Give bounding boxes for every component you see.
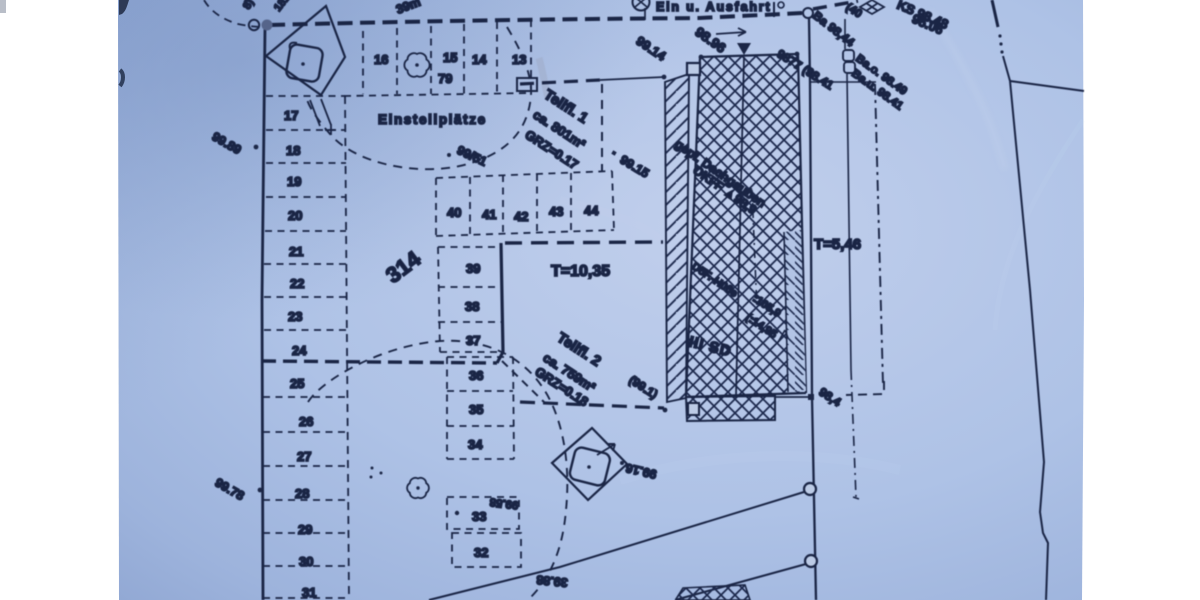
svg-text:44: 44 <box>584 203 599 218</box>
svg-text:43: 43 <box>549 204 563 219</box>
svg-text:34: 34 <box>468 437 483 452</box>
svg-text:79: 79 <box>438 71 452 86</box>
svg-text:41: 41 <box>482 207 496 222</box>
svg-text:30: 30 <box>299 554 313 569</box>
svg-text:19: 19 <box>287 174 301 189</box>
svg-text:Ein u. Ausfahrt: Ein u. Ausfahrt <box>656 0 771 14</box>
svg-text:18: 18 <box>286 143 300 158</box>
svg-text:32: 32 <box>474 545 488 560</box>
svg-text:31: 31 <box>302 585 316 600</box>
svg-text:T=5,46: T=5,46 <box>814 236 861 253</box>
svg-text:T=10,35: T=10,35 <box>551 263 610 280</box>
svg-text:20: 20 <box>288 208 302 223</box>
svg-text:26: 26 <box>299 414 313 429</box>
svg-text:Einstellplätze: Einstellplätze <box>378 112 487 127</box>
svg-text:14: 14 <box>472 52 487 67</box>
svg-text:39: 39 <box>466 261 480 276</box>
svg-text:27: 27 <box>297 449 311 464</box>
svg-text:38: 38 <box>465 299 479 314</box>
svg-text:36: 36 <box>469 368 483 383</box>
svg-text:24: 24 <box>292 343 307 358</box>
svg-text:16: 16 <box>374 52 388 67</box>
svg-text:29: 29 <box>298 522 312 537</box>
svg-text:42: 42 <box>514 209 528 224</box>
svg-text:15: 15 <box>443 50 457 65</box>
svg-text:17: 17 <box>284 108 298 123</box>
svg-text:25: 25 <box>290 376 304 391</box>
svg-text:35: 35 <box>469 402 483 417</box>
svg-text:33: 33 <box>472 509 486 524</box>
svg-text:40: 40 <box>447 205 461 220</box>
svg-text:28: 28 <box>295 486 309 501</box>
svg-text:22: 22 <box>290 276 304 291</box>
svg-text:23: 23 <box>288 309 302 324</box>
svg-text:21: 21 <box>289 244 303 259</box>
svg-text:37: 37 <box>466 333 480 348</box>
